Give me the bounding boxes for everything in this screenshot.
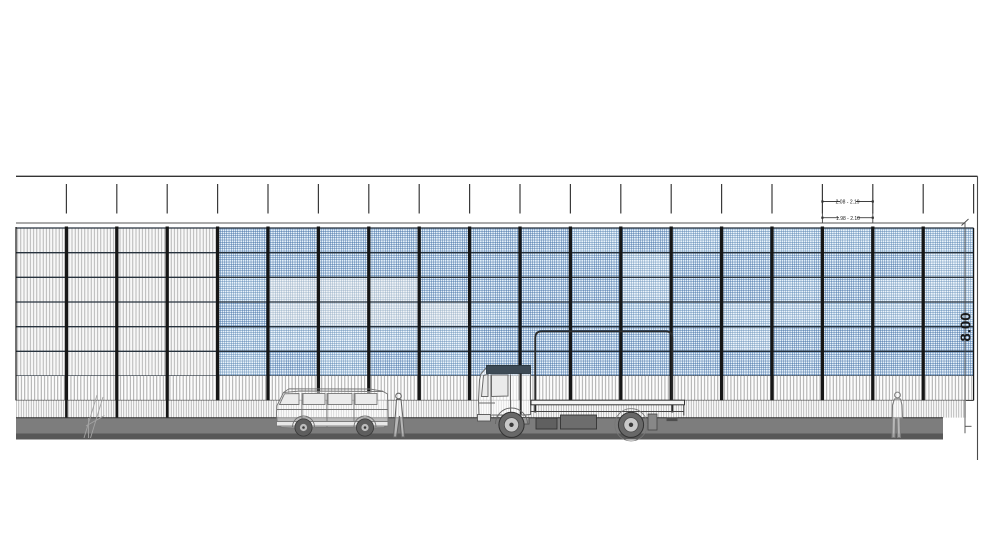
svg-text:2.08 - 2.19: 2.08 - 2.19 [836,200,860,206]
svg-text:8.00: 8.00 [957,312,974,341]
svg-text:1.98 - 2.10: 1.98 - 2.10 [836,216,860,222]
